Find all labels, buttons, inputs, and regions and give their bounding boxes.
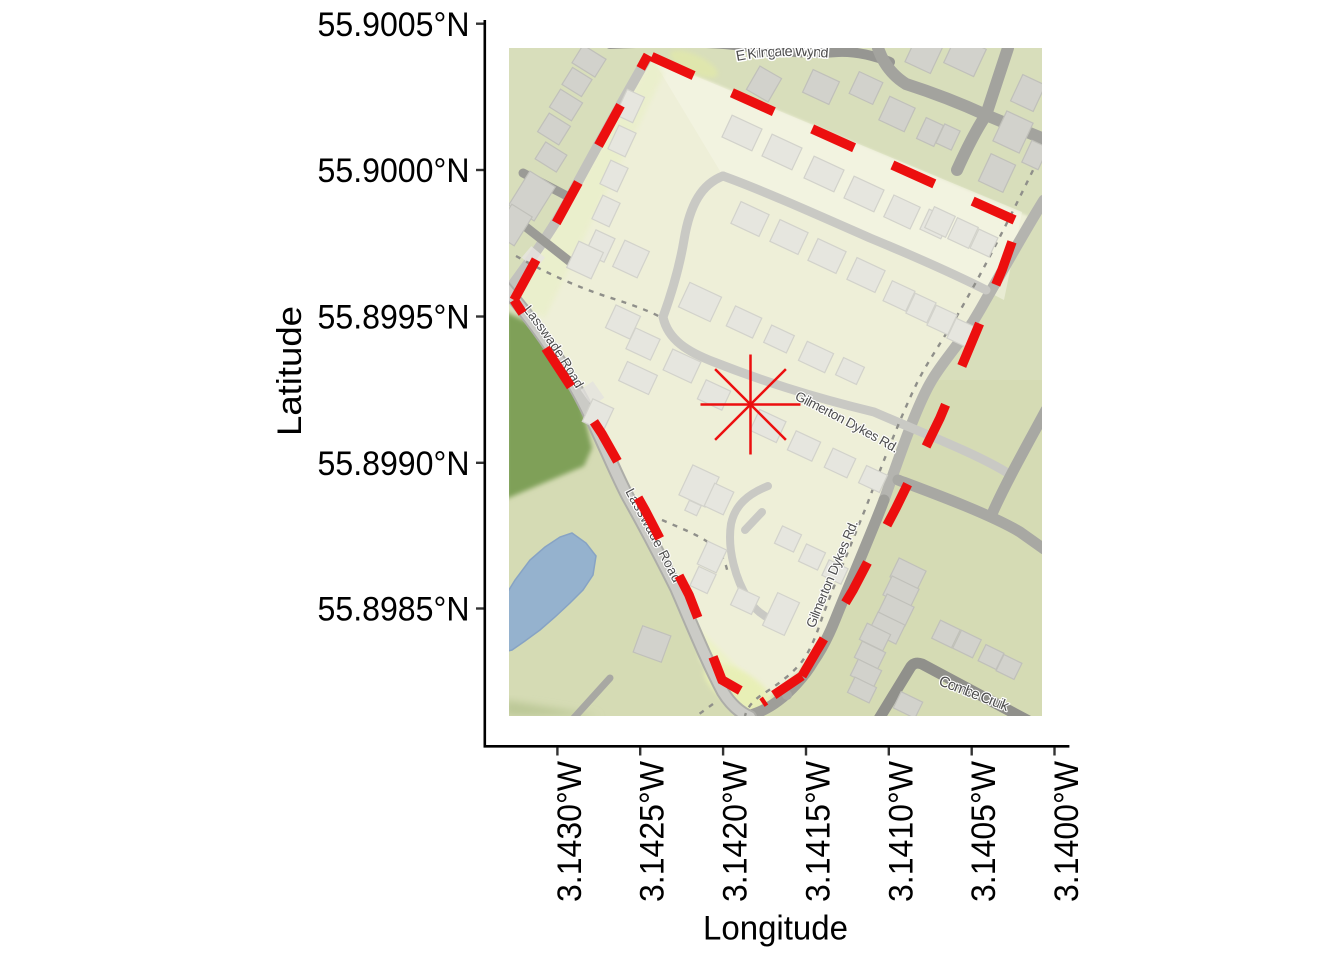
svg-text:3.1425°W: 3.1425°W — [634, 761, 672, 902]
svg-text:3.1420°W: 3.1420°W — [717, 761, 755, 902]
svg-text:3.1415°W: 3.1415°W — [800, 761, 838, 902]
svg-text:55.8985°N: 55.8985°N — [318, 591, 470, 629]
svg-text:Longitude: Longitude — [703, 909, 848, 947]
svg-text:55.9000°N: 55.9000°N — [318, 152, 470, 190]
svg-text:3.1405°W: 3.1405°W — [965, 761, 1003, 902]
svg-text:55.9005°N: 55.9005°N — [318, 6, 470, 44]
svg-text:3.1410°W: 3.1410°W — [882, 761, 920, 902]
svg-text:55.8990°N: 55.8990°N — [318, 445, 470, 483]
svg-text:55.8995°N: 55.8995°N — [318, 299, 470, 337]
svg-text:3.1400°W: 3.1400°W — [1048, 761, 1086, 902]
svg-text:3.1430°W: 3.1430°W — [551, 761, 589, 902]
svg-text:Latitude: Latitude — [271, 306, 309, 436]
